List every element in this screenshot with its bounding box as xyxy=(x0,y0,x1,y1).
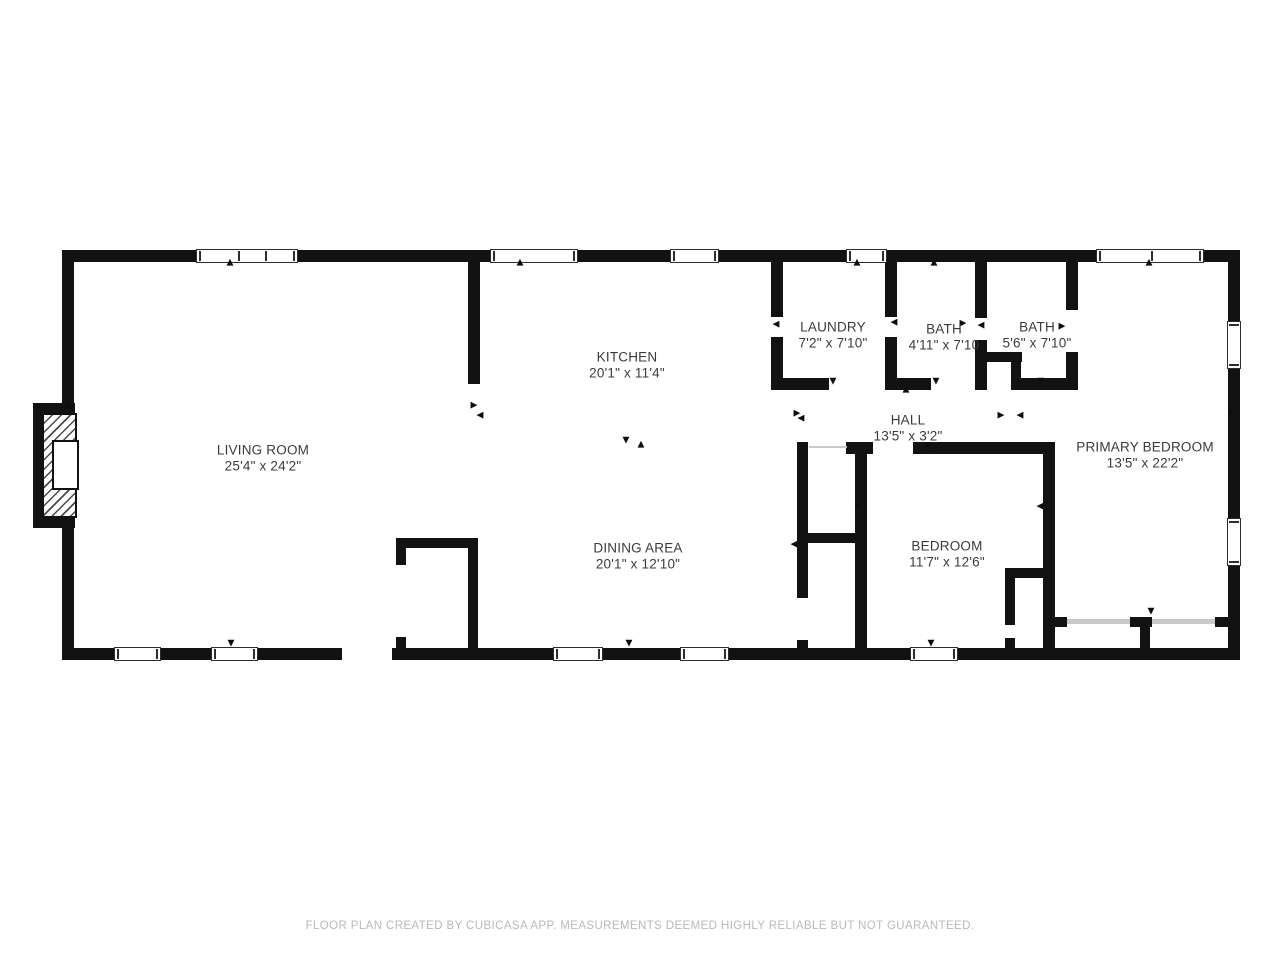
window-mullion xyxy=(714,251,716,261)
room-dimensions: 13'5" x 22'2" xyxy=(1076,455,1214,471)
window xyxy=(910,647,958,661)
room-dimensions: 13'5" x 3'2" xyxy=(874,428,943,444)
wall-segment xyxy=(1005,568,1053,578)
door-swing-marker: ▲ xyxy=(517,259,524,268)
window xyxy=(1227,321,1241,369)
room-name: LIVING ROOM xyxy=(217,443,309,459)
window-mullion xyxy=(1229,521,1239,523)
window-mullion xyxy=(493,251,495,261)
room-label: KITCHEN20'1" x 11'4" xyxy=(589,350,665,381)
door-swing-marker: ◀ xyxy=(477,412,484,421)
window xyxy=(211,647,258,661)
window-mullion xyxy=(117,649,119,659)
window-mullion xyxy=(1229,364,1239,366)
sliding-door-track xyxy=(809,446,847,448)
door-swing-marker: ▶ xyxy=(794,410,801,419)
window-mullion xyxy=(1199,251,1201,261)
door-swing-marker: ▶ xyxy=(998,412,1005,421)
room-dimensions: 4'11" x 7'10 xyxy=(909,337,980,353)
door-swing-marker: ▲ xyxy=(638,441,645,450)
window-mullion xyxy=(673,251,675,261)
window-mullion xyxy=(214,649,216,659)
room-name: BATH xyxy=(1003,320,1072,336)
door-swing-marker: ▶ xyxy=(856,503,863,512)
fireplace-firebox xyxy=(52,440,79,490)
wall-segment xyxy=(1215,617,1240,627)
door-swing-marker: ▲ xyxy=(854,259,861,268)
door-swing-marker: ▼ xyxy=(623,437,630,446)
room-name: KITCHEN xyxy=(589,350,665,366)
door-swing-marker: ▼ xyxy=(830,378,837,387)
wall-segment xyxy=(1140,627,1150,648)
room-label: LAUNDRY7'2" x 7'10" xyxy=(799,320,868,351)
window xyxy=(680,647,729,661)
window xyxy=(670,249,719,263)
wall-segment xyxy=(797,533,855,543)
wall-segment xyxy=(1005,578,1015,625)
window-mullion xyxy=(556,649,558,659)
room-name: HALL xyxy=(874,413,943,429)
door-swing-marker: ▲ xyxy=(903,386,910,395)
room-dimensions: 20'1" x 11'4" xyxy=(589,365,665,381)
window-mullion xyxy=(199,251,201,261)
wall-segment xyxy=(1066,262,1078,310)
room-label: BATH4'11" x 7'10 xyxy=(909,322,980,353)
window-mullion xyxy=(1229,561,1239,563)
door-swing-marker: ◀ xyxy=(63,403,70,412)
door-swing-marker: ▼ xyxy=(1038,378,1045,387)
floor-plan: FLOOR PLAN CREATED BY CUBICASA APP. MEAS… xyxy=(0,0,1280,960)
wall-segment xyxy=(396,538,478,548)
door-opening xyxy=(342,648,392,660)
wall-segment xyxy=(797,640,808,648)
room-name: BEDROOM xyxy=(909,539,985,555)
room-label: LIVING ROOM25'4" x 24'2" xyxy=(217,443,309,474)
room-name: PRIMARY BEDROOM xyxy=(1076,440,1214,456)
room-label: BEDROOM11'7" x 12'6" xyxy=(909,539,985,570)
window-mullion xyxy=(573,251,575,261)
door-swing-marker: ▶ xyxy=(1229,409,1236,418)
window xyxy=(846,249,887,263)
room-dimensions: 7'2" x 7'10" xyxy=(799,335,868,351)
wall-segment xyxy=(797,442,808,598)
wall-segment xyxy=(1228,250,1240,660)
room-label: BATH5'6" x 7'10" xyxy=(1003,320,1072,351)
door-swing-marker: ◀ xyxy=(1017,412,1024,421)
door-swing-marker: ◀ xyxy=(791,541,798,550)
door-swing-marker: ◀ xyxy=(773,321,780,330)
door-swing-marker: ▼ xyxy=(928,640,935,649)
room-dimensions: 11'7" x 12'6" xyxy=(909,554,985,570)
room-label: DINING AREA20'1" x 12'10" xyxy=(593,541,682,572)
window-mullion xyxy=(598,649,600,659)
door-swing-marker: ▲ xyxy=(931,259,938,268)
window-mullion xyxy=(1099,251,1101,261)
window-mullion xyxy=(913,649,915,659)
wall-segment xyxy=(1013,378,1078,390)
window-mullion xyxy=(849,251,851,261)
room-name: DINING AREA xyxy=(593,541,682,557)
room-dimensions: 25'4" x 24'2" xyxy=(217,458,309,474)
window-mullion xyxy=(882,251,884,261)
door-swing-marker: ▼ xyxy=(1148,608,1155,617)
wall-segment xyxy=(62,250,74,410)
wall-segment xyxy=(33,403,42,528)
door-swing-marker: ▼ xyxy=(228,640,235,649)
room-dimensions: 20'1" x 12'10" xyxy=(593,556,682,572)
room-label: PRIMARY BEDROOM13'5" x 22'2" xyxy=(1076,440,1214,471)
wall-segment xyxy=(468,262,480,384)
window-mullion xyxy=(953,649,955,659)
wall-segment xyxy=(1130,617,1152,627)
door-swing-marker: ▶ xyxy=(471,402,478,411)
door-swing-marker: ▲ xyxy=(1146,259,1153,268)
door-swing-marker: ◀ xyxy=(891,319,898,328)
window-mullion xyxy=(1229,324,1239,326)
window-mullion xyxy=(724,649,726,659)
window-mullion xyxy=(156,649,158,659)
window xyxy=(114,647,161,661)
window xyxy=(553,647,603,661)
window xyxy=(490,249,578,263)
wall-segment xyxy=(975,262,987,318)
wall-segment xyxy=(855,454,867,648)
wall-segment xyxy=(771,378,829,390)
door-swing-marker: ▼ xyxy=(926,443,933,452)
wall-segment xyxy=(913,442,1055,454)
window xyxy=(196,249,298,263)
door-swing-marker: ▼ xyxy=(933,378,940,387)
window-mullion xyxy=(293,251,295,261)
wall-segment xyxy=(468,538,478,648)
door-swing-marker: ◀ xyxy=(1037,503,1044,512)
room-name: LAUNDRY xyxy=(799,320,868,336)
wall-segment xyxy=(396,548,406,565)
door-swing-marker: ▲ xyxy=(227,259,234,268)
room-name: BATH xyxy=(909,322,980,338)
window xyxy=(1227,518,1241,566)
door-swing-marker: ▼ xyxy=(626,640,633,649)
window-mullion xyxy=(265,251,267,261)
wall-segment xyxy=(846,442,873,454)
wall-segment xyxy=(1005,638,1015,648)
wall-segment xyxy=(396,637,406,648)
room-label: HALL13'5" x 3'2" xyxy=(874,413,943,444)
wall-segment xyxy=(885,262,897,317)
window-mullion xyxy=(253,649,255,659)
room-dimensions: 5'6" x 7'10" xyxy=(1003,335,1072,351)
wall-segment xyxy=(1053,617,1067,627)
sliding-door-track xyxy=(1152,619,1215,624)
footer-disclaimer: FLOOR PLAN CREATED BY CUBICASA APP. MEAS… xyxy=(306,920,975,932)
wall-segment xyxy=(62,521,74,660)
sliding-door-track xyxy=(1067,619,1130,624)
wall-segment xyxy=(975,378,987,390)
window-mullion xyxy=(683,649,685,659)
wall-segment xyxy=(771,262,783,317)
window-mullion xyxy=(238,251,240,261)
